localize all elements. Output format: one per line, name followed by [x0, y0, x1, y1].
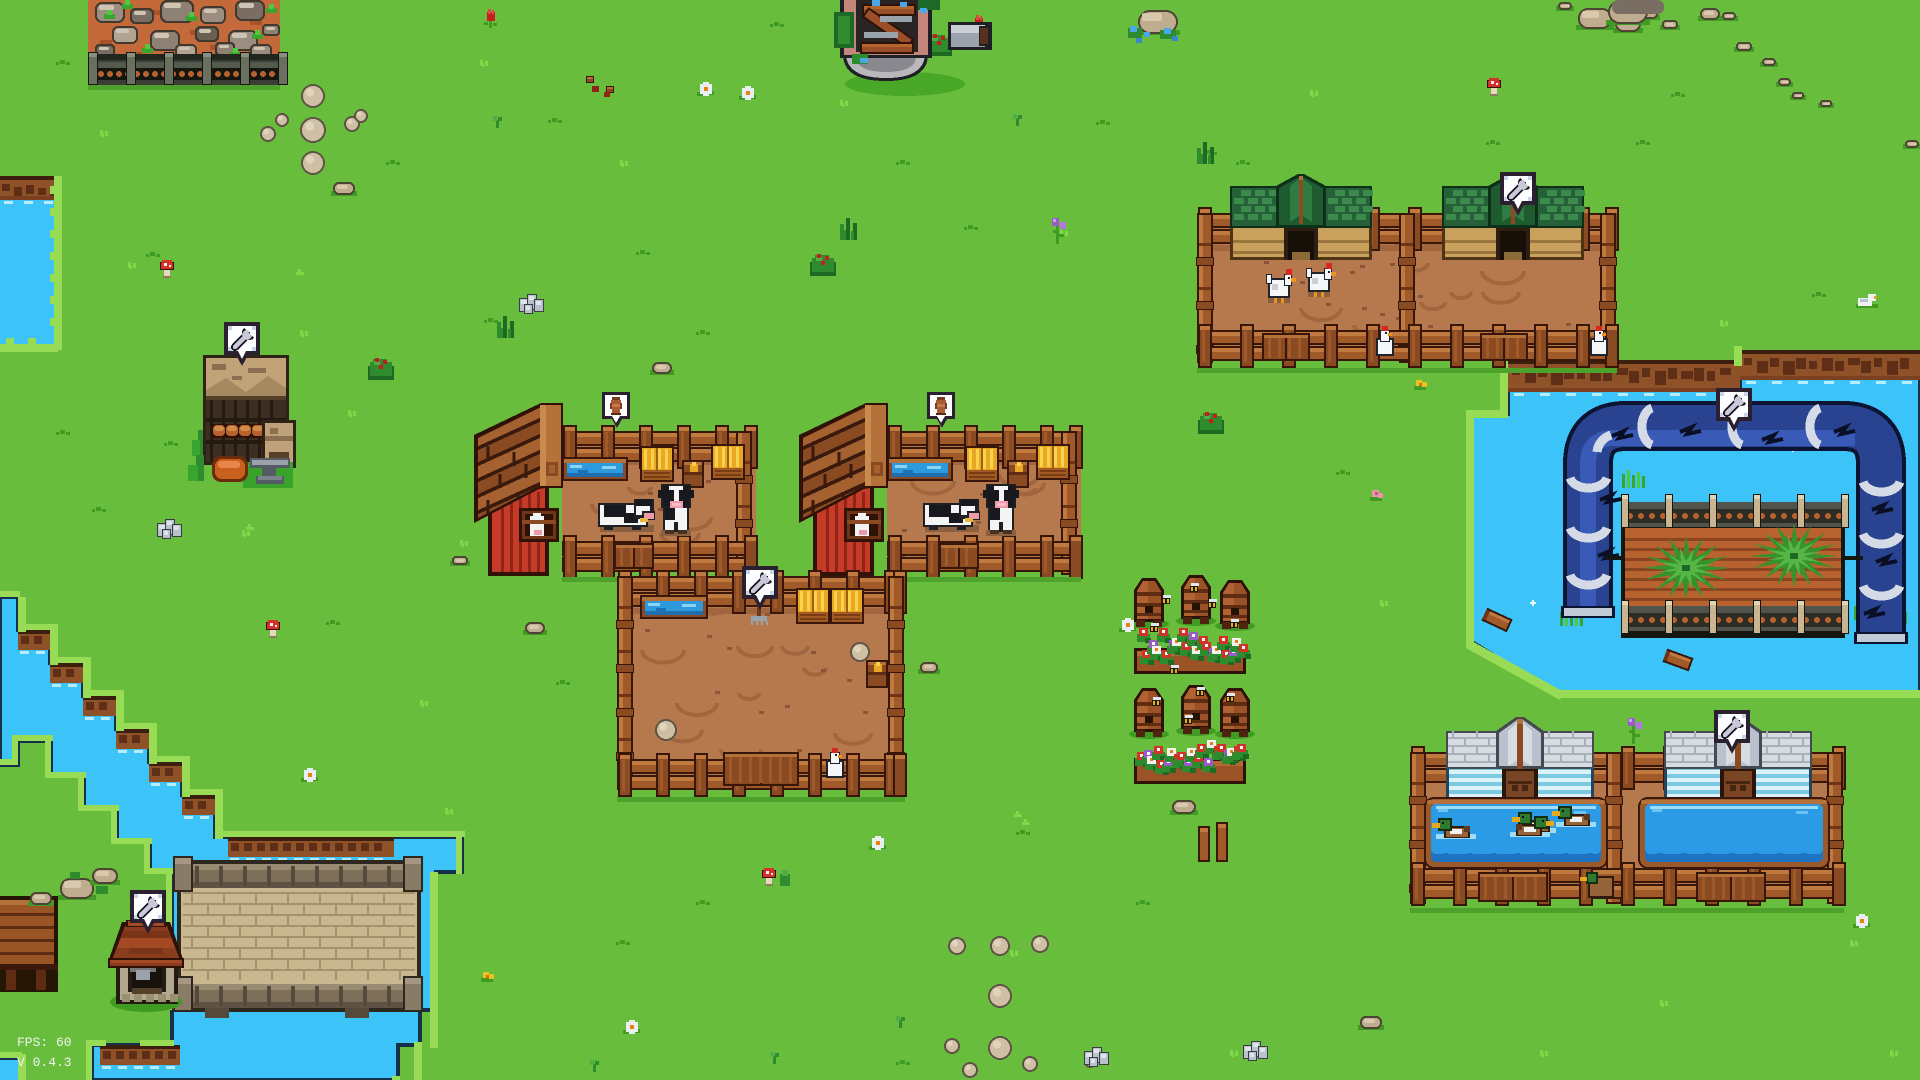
svg-text:V 0.4.3: V 0.4.3: [17, 1055, 72, 1070]
svg-text:FPS: 60: FPS: 60: [17, 1035, 72, 1050]
